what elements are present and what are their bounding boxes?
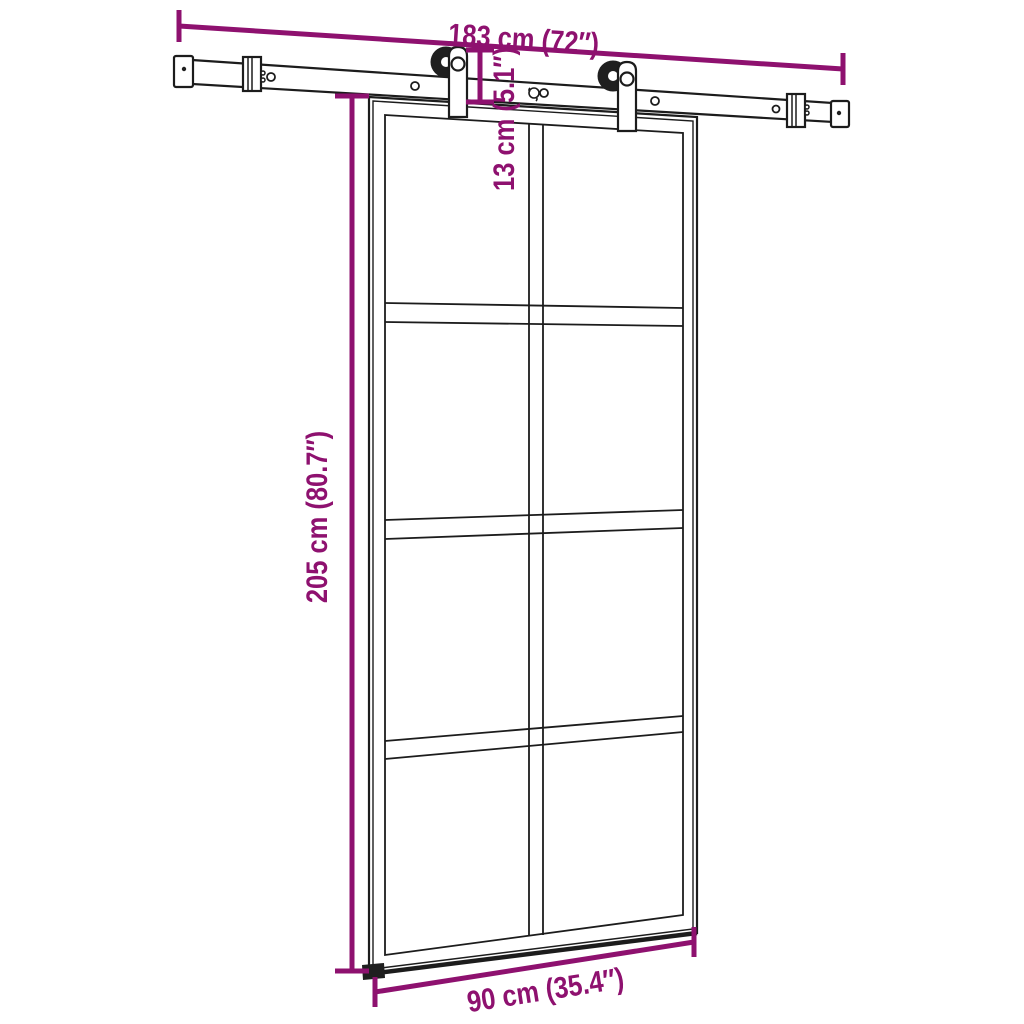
rail-hole [651,97,659,105]
rail-left-bracket [243,57,265,91]
dim-door-height: 205 cm (80.7″) [300,96,369,971]
rail-hole [267,73,275,81]
clearance-height-label: 13 cm (5.1″) [487,47,520,191]
rail-hole [773,106,780,113]
door-width-label: 90 cm (35.4″) [465,961,626,1018]
rail-left-cap-dot [182,67,186,71]
roller-wheel-hub [608,71,618,81]
rail-right-bracket [787,94,809,127]
rail-width-label: 183 cm (72″) [447,17,600,60]
rail-left-end-cap-icon [174,56,193,87]
door [362,97,697,980]
roller-bolt-icon [621,73,634,86]
diagram-svg: 183 cm (72″) 13 cm (5.1″) 205 cm (80.7″)… [0,0,1024,1024]
roller-bolt-icon [452,58,465,71]
door-frame-outer [369,97,697,974]
rail-hole [540,89,548,97]
dimension-diagram: 183 cm (72″) 13 cm (5.1″) 205 cm (80.7″)… [0,0,1024,1024]
rail-right-cap-dot [837,111,841,115]
rail-hole [411,82,419,90]
door-height-label: 205 cm (80.7″) [300,431,333,603]
